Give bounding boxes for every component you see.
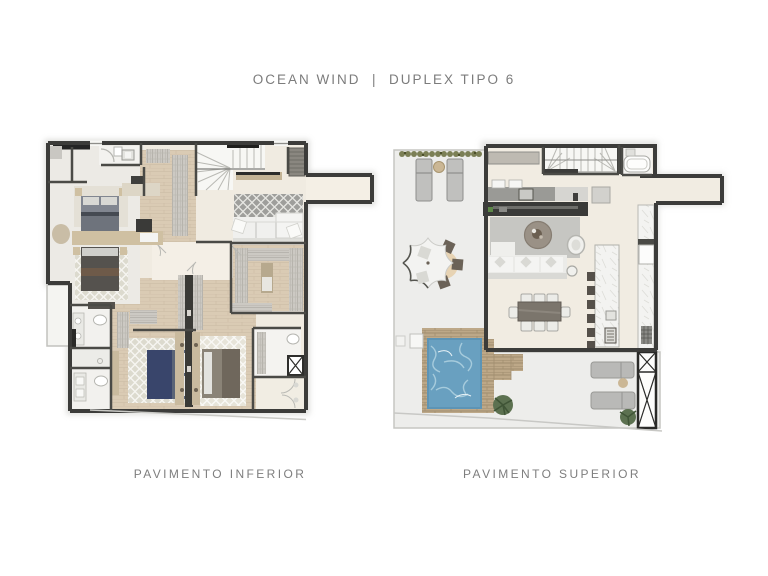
svg-text:PAVIMENTO INFERIOR: PAVIMENTO INFERIOR xyxy=(134,467,307,481)
svg-text:OCEAN WIND | DUPLEX TIPO 6: OCEAN WIND | DUPLEX TIPO 6 xyxy=(253,72,516,87)
svg-text:PAVIMENTO SUPERIOR: PAVIMENTO SUPERIOR xyxy=(463,467,641,481)
